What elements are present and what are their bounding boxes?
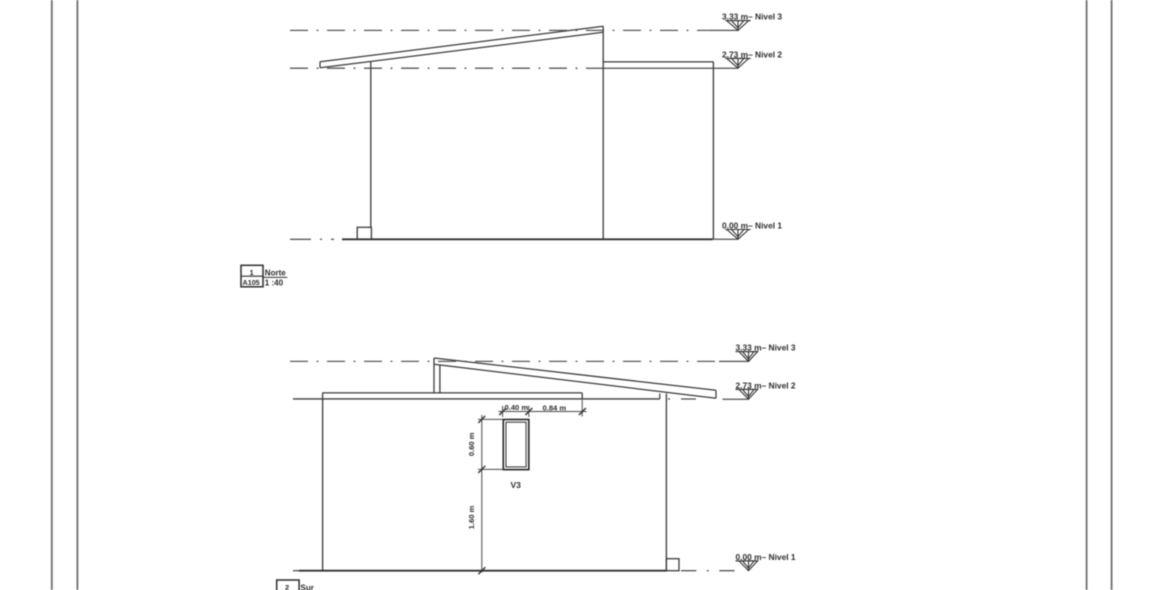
svg-text:1 :40: 1 :40 [265,278,284,287]
svg-text:A105: A105 [243,278,260,287]
svg-text:Sur: Sur [301,583,314,590]
svg-text:0.60 m: 0.60 m [467,432,476,456]
svg-text:Norte: Norte [265,268,286,277]
svg-text:0.84 m: 0.84 m [543,403,567,412]
svg-text:3.33 m– Nivel 3: 3.33 m– Nivel 3 [736,343,796,353]
svg-text:V3: V3 [511,480,522,490]
svg-text:0.40 m: 0.40 m [505,403,529,412]
svg-text:0.00 m– Nivel 1: 0.00 m– Nivel 1 [722,221,782,231]
svg-text:2.73 m– Nivel 2: 2.73 m– Nivel 2 [736,380,796,390]
svg-text:3.33 m– Nivel 3: 3.33 m– Nivel 3 [722,12,782,22]
svg-text:2: 2 [285,583,289,590]
svg-text:1: 1 [250,268,254,277]
svg-text:1.60 m: 1.60 m [467,505,476,529]
svg-text:0.00 m– Nivel 1: 0.00 m– Nivel 1 [736,552,796,562]
svg-text:2.73 m– Nivel 2: 2.73 m– Nivel 2 [722,49,782,59]
